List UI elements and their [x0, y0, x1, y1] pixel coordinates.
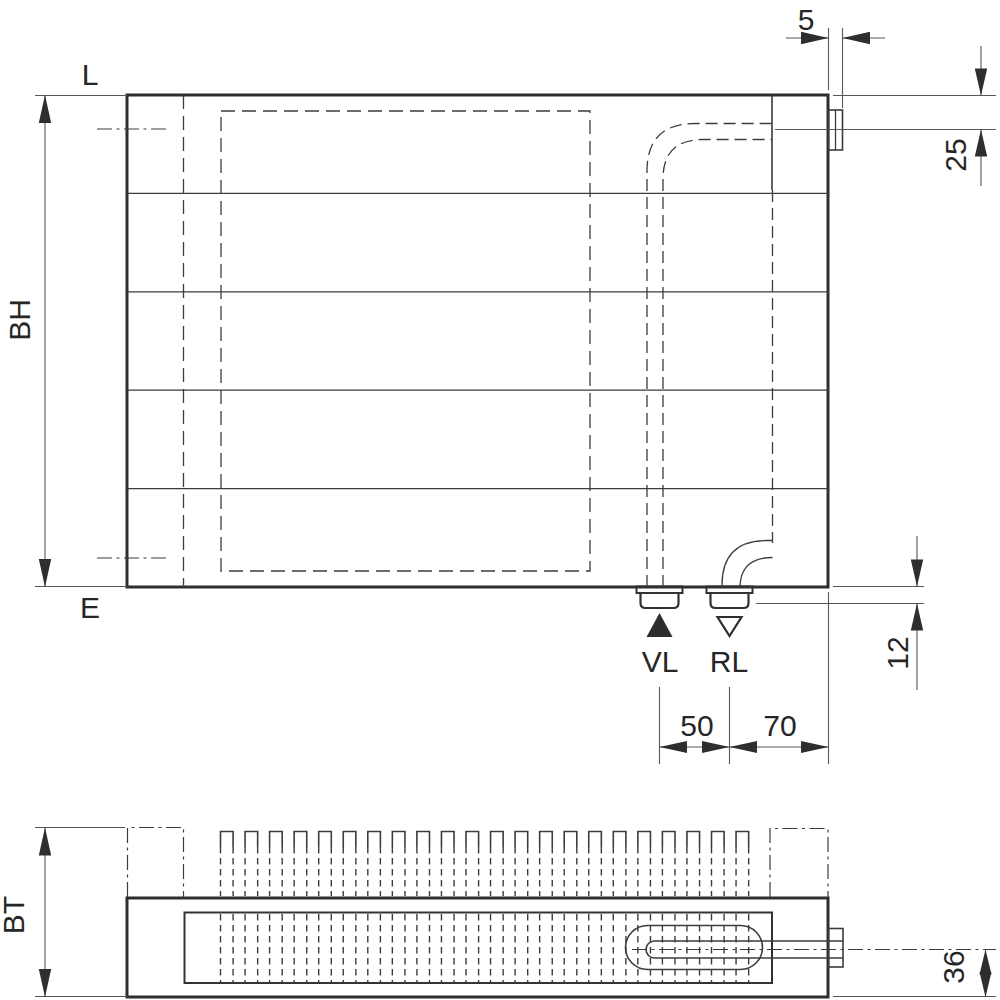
- fin-legs-inner: [221, 914, 749, 982]
- dim-arrow: [980, 972, 992, 997]
- dim-arrow: [911, 604, 923, 631]
- dim-connection-spacing: 50 70: [660, 592, 829, 764]
- side-connection-tab: [829, 929, 844, 968]
- extension-lines: [756, 587, 924, 604]
- stub-body: [711, 593, 749, 608]
- return-elbow-outer: [722, 541, 773, 589]
- dim-arrow: [911, 560, 923, 587]
- extension-lines: [35, 96, 127, 587]
- inner-panel-hidden-outline: [221, 111, 590, 571]
- dim-bracket-width: 5: [786, 3, 885, 108]
- height-label: BH: [3, 299, 36, 341]
- top-view: BT 36: [0, 828, 996, 998]
- dim-axis-to-face: 36: [833, 950, 996, 998]
- dim-value-70: 70: [763, 709, 796, 742]
- return-elbow-inner: [740, 558, 773, 589]
- valve-housing-phantom-outline: [770, 829, 828, 898]
- supply-label: VL: [642, 645, 679, 678]
- dim-arrow: [660, 741, 688, 753]
- return-connection-stub: [707, 587, 753, 609]
- radiator-drawing: VL RL 5 25 12: [0, 0, 1000, 1000]
- fin-caps: [221, 832, 749, 848]
- depth-label: BT: [0, 896, 30, 934]
- technical-drawing-canvas: VL RL 5 25 12: [0, 0, 1000, 1000]
- dim-arrow: [975, 130, 987, 157]
- dim-value: 12: [881, 636, 914, 669]
- flow-direction-symbols: VL RL: [642, 613, 749, 678]
- dim-arrow: [39, 559, 51, 587]
- return-flow-down-icon: [718, 617, 742, 636]
- dim-arrow: [980, 950, 992, 975]
- stub-body: [641, 593, 679, 608]
- panel-section-lines: [127, 193, 828, 488]
- dim-depth-bt: BT: [0, 828, 127, 998]
- dim-height-bh: L E BH: [3, 58, 127, 624]
- supply-pipe-hidden-inner: [663, 140, 772, 588]
- supply-connection-stub: [637, 587, 683, 609]
- convector-fins: [221, 832, 749, 983]
- radiator-outline: [127, 95, 828, 587]
- dim-value: 25: [939, 138, 972, 171]
- dim-arrow: [801, 741, 829, 753]
- dim-arrow: [702, 741, 730, 753]
- length-label: L: [82, 58, 99, 91]
- dim-value-50: 50: [680, 709, 713, 742]
- dim-arrow: [39, 828, 51, 856]
- return-label: RL: [710, 645, 748, 678]
- left-header-phantom-outline: [128, 828, 184, 898]
- dim-value: 5: [798, 3, 815, 36]
- dim-arrow: [39, 95, 51, 123]
- dim-arrow: [975, 69, 987, 96]
- dim-value: 36: [937, 950, 970, 983]
- dim-arrow: [39, 969, 51, 997]
- bottom-label: E: [80, 591, 100, 624]
- dim-bottom-to-stub: 12: [756, 536, 924, 690]
- dim-arrow: [730, 741, 758, 753]
- front-view: VL RL 5 25 12: [3, 3, 996, 764]
- dim-arrow: [843, 32, 871, 44]
- dim-top-to-axis: 25: [833, 46, 996, 186]
- fin-legs-upper: [221, 847, 749, 896]
- supply-flow-up-icon: [647, 613, 673, 637]
